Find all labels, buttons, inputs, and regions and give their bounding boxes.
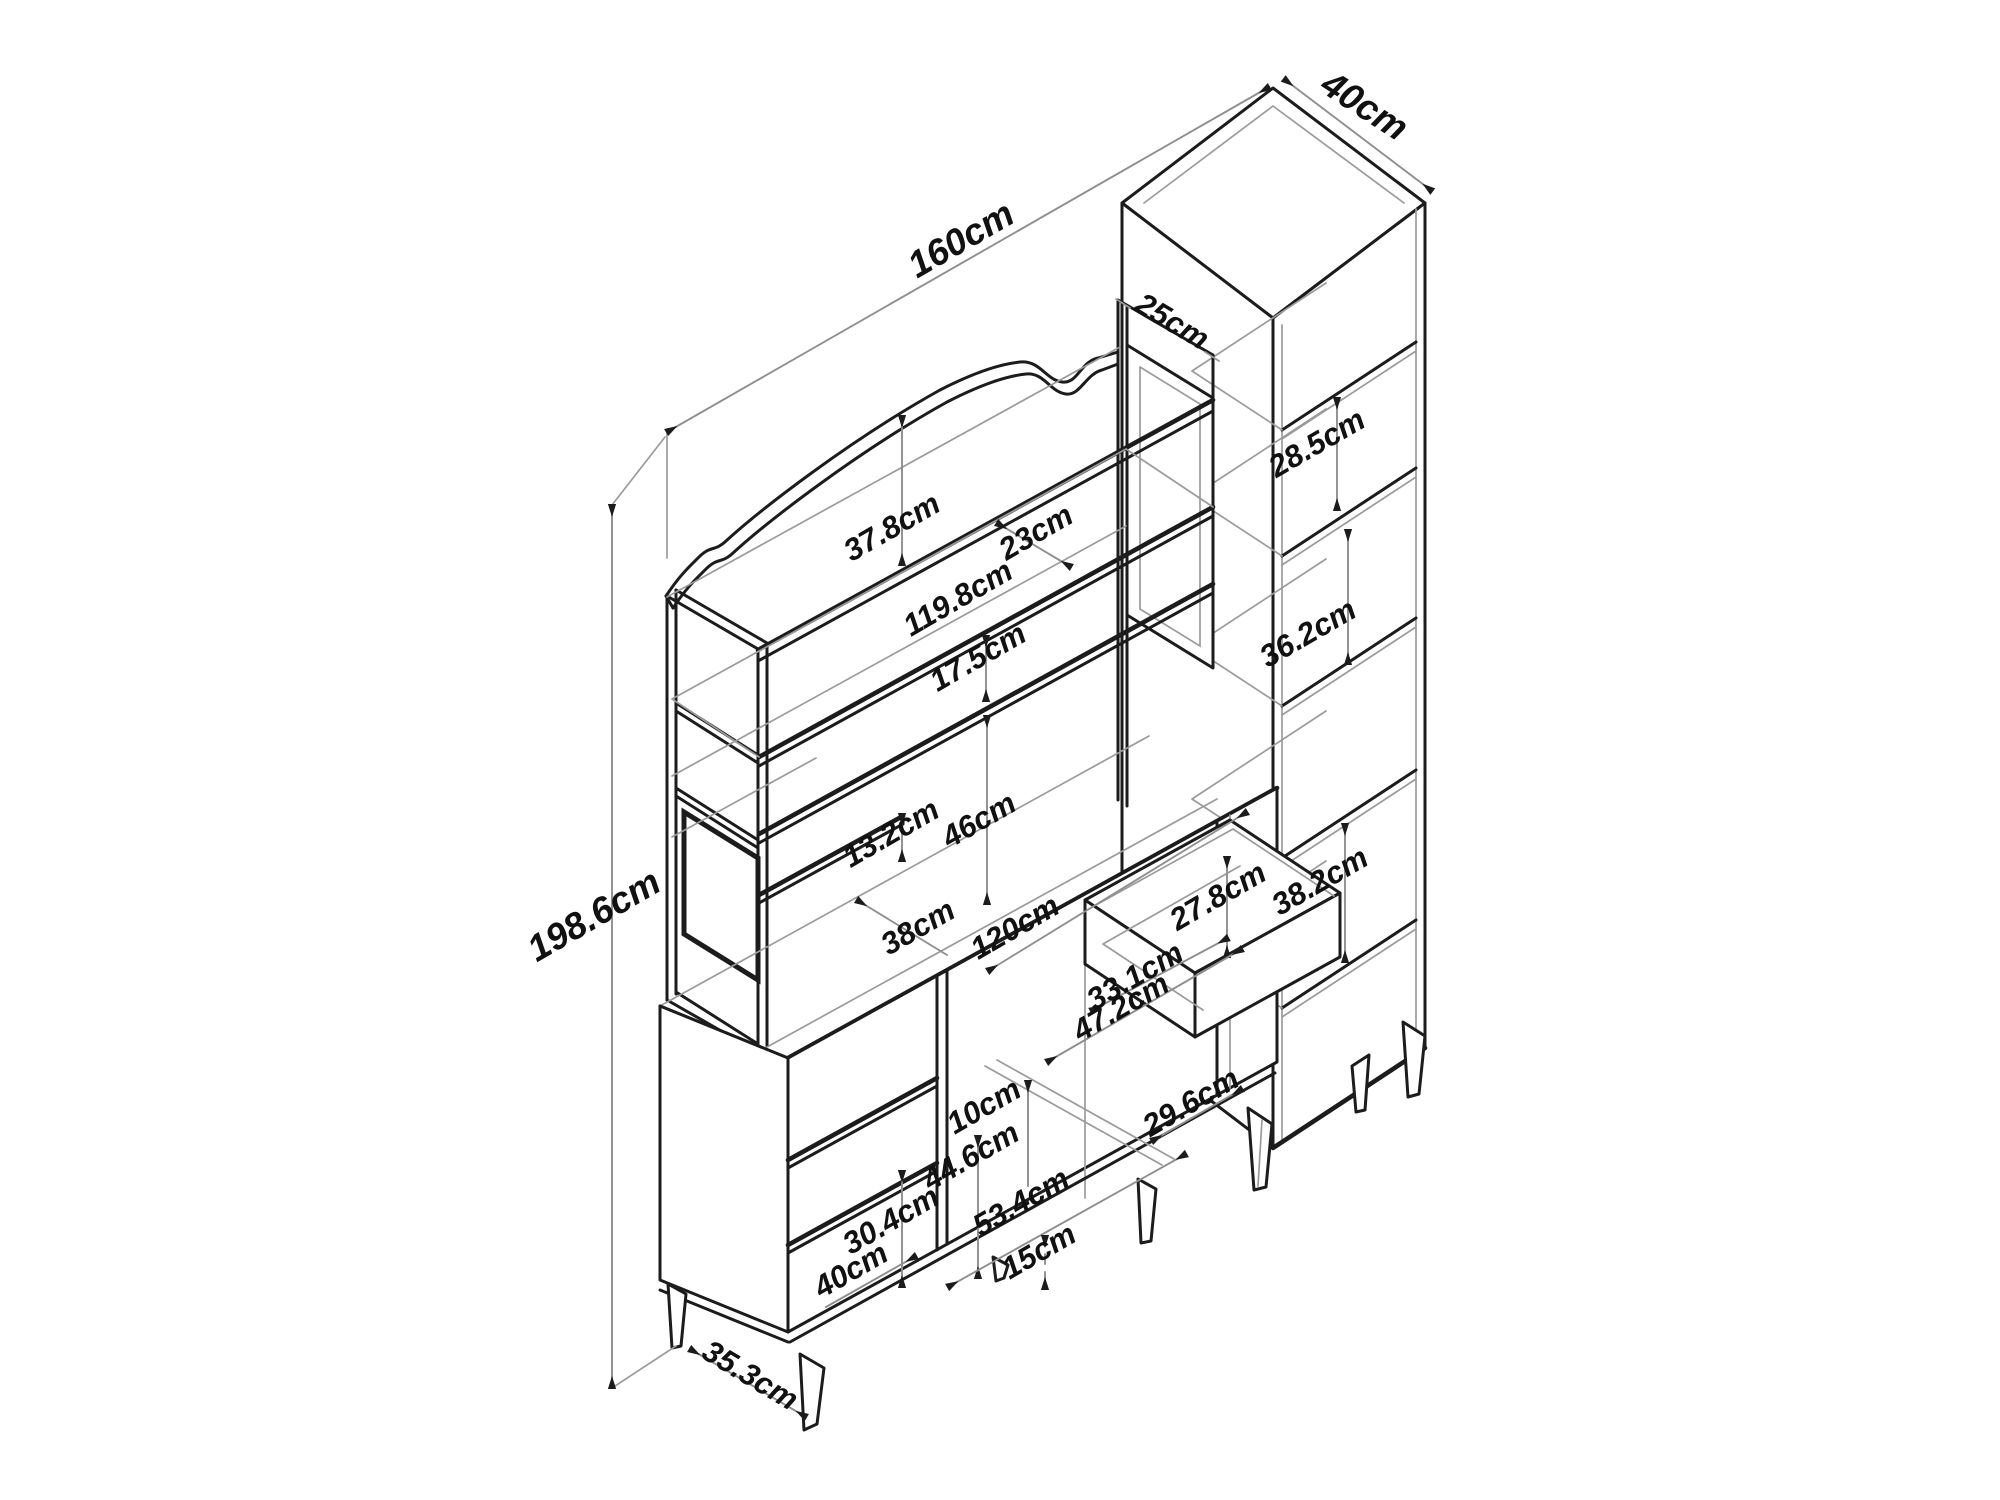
crest-inner-curve [673,364,1118,608]
hutch-top-board-back [667,347,1120,597]
tower-leg [1403,1022,1425,1097]
dim-label-overall-height: 198.6cm [520,861,667,970]
dim-label-shelf-gap-lower: 13.2cm [836,791,945,874]
cabinet-leg [1138,1179,1156,1243]
isometric-drawing: 160cm 198.6cm 40cm 25cm 28.5cm 36.2cm 38… [0,0,2000,1500]
cabinet-side-panel [660,1006,788,1332]
hutch-frame-panel [684,812,758,980]
cabinet-leg [668,1284,686,1348]
tower-leg [1352,1055,1369,1112]
dim-label-base-depth: 35.3cm [696,1333,804,1417]
hutch-shelf-b-back [672,526,1126,776]
tower-front-face [1273,203,1425,1148]
dim-label-side-shelf-width: 38cm [875,892,961,962]
furniture-dimension-diagram: 160cm 198.6cm 40cm 25cm 28.5cm 36.2cm 38… [0,0,2000,1500]
cabinet-leg [800,1354,824,1430]
dim-label-hutch-opening: 46cm [935,785,1022,855]
